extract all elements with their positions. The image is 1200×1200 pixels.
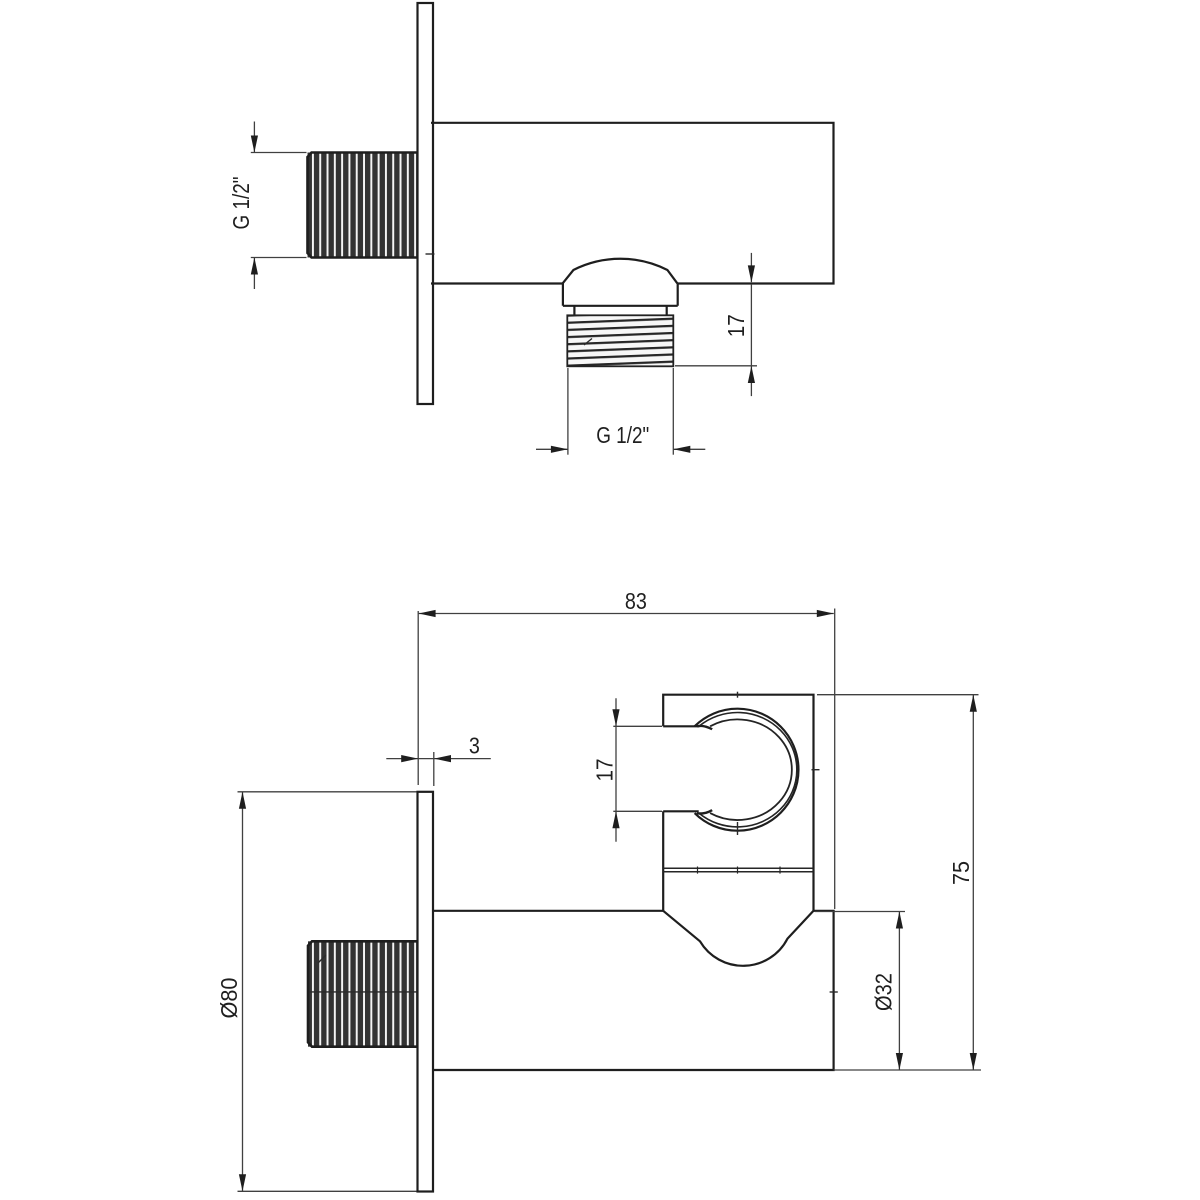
svg-text:Ø80: Ø80: [216, 978, 242, 1019]
svg-text:G 1/2": G 1/2": [596, 422, 649, 448]
svg-text:Ø32: Ø32: [871, 973, 897, 1011]
svg-text:G 1/2": G 1/2": [228, 177, 254, 230]
svg-text:75: 75: [948, 861, 974, 885]
svg-text:17: 17: [592, 759, 618, 782]
svg-text:17: 17: [723, 314, 749, 337]
svg-text:3: 3: [469, 733, 480, 759]
svg-text:83: 83: [625, 588, 647, 614]
